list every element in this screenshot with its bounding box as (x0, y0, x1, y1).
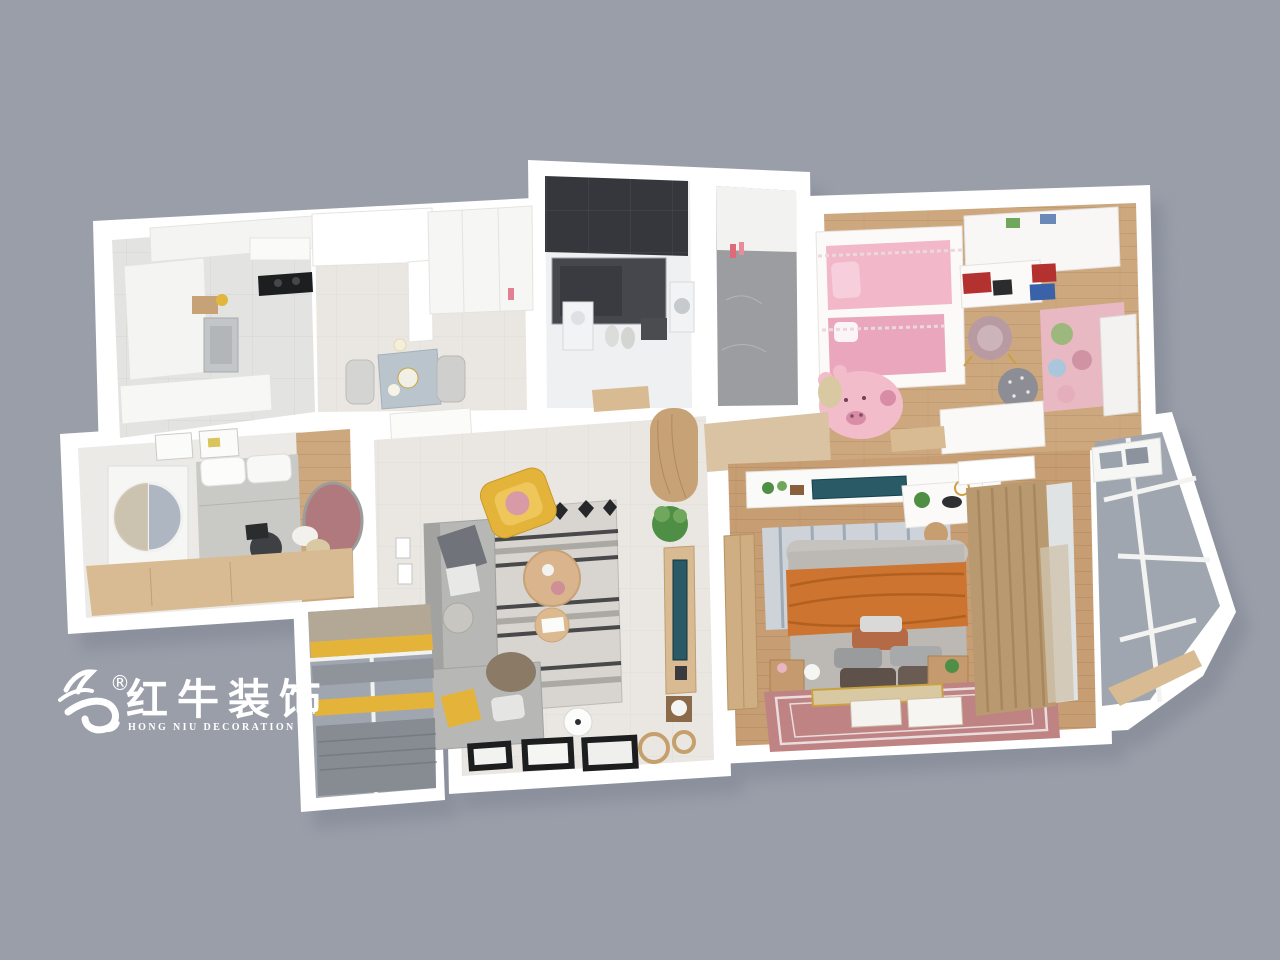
toy-box-blue (1030, 283, 1056, 300)
shelf-plant (762, 482, 774, 494)
blue-pillow (1048, 359, 1066, 377)
plant-leaf (654, 506, 670, 522)
range-hood (250, 238, 310, 260)
kitchen-white-cabinet (312, 208, 433, 266)
knit-basket (443, 603, 473, 633)
slipper (621, 327, 635, 349)
pink-deco (508, 288, 514, 300)
soundbar (675, 666, 687, 680)
pig-spot (880, 390, 896, 406)
desk-items (942, 496, 962, 508)
utility-cabinet (716, 186, 797, 252)
tv-screen (673, 560, 687, 660)
wall-frame (155, 433, 193, 460)
render-canvas: ® 红牛装饰 HONG NIU DECORATION (0, 0, 1280, 960)
pillow-deco (860, 616, 902, 632)
bath-sink-cabinet (563, 302, 593, 350)
plant-leaf (673, 509, 687, 523)
star-pillow (1051, 323, 1073, 345)
wash-basin (571, 311, 585, 325)
cushion-white (490, 694, 525, 722)
book (541, 617, 564, 633)
nightstand (770, 660, 804, 692)
room-second-bedroom (78, 429, 362, 618)
rose-pillow (1072, 350, 1092, 370)
room-kids-bedroom (816, 203, 1142, 462)
pig-eye (862, 396, 866, 400)
floor-frame (907, 697, 962, 728)
kids-pillow (831, 261, 861, 299)
pillow (246, 453, 292, 483)
wood-box (790, 485, 804, 495)
nightstand-plant (945, 659, 959, 673)
coffee-table-large (524, 550, 580, 606)
shelf-book (1040, 214, 1056, 224)
paper-roll (671, 700, 687, 716)
toy-box-red (1032, 263, 1057, 282)
pig-ear (833, 365, 847, 379)
yellow-dish (216, 294, 228, 306)
desk-plant (914, 492, 930, 508)
pig-nostril (859, 413, 863, 417)
table-vase (542, 564, 554, 576)
gray-towel (1099, 451, 1123, 469)
pink-bottle (739, 242, 744, 255)
tan-pillow (818, 376, 842, 408)
pillow-gray (834, 648, 882, 668)
pig-nostril (850, 414, 854, 418)
pig-snout (846, 411, 866, 425)
burner (274, 279, 282, 287)
washer-door (674, 298, 690, 314)
throw-blanket (486, 652, 536, 692)
bath-dark-tile-grid (545, 176, 688, 256)
cooktop (258, 272, 313, 296)
gray-towel (1125, 447, 1149, 465)
room-kitchen (112, 206, 533, 447)
room-utility (716, 186, 798, 406)
wall-frame (398, 564, 412, 584)
shelf-plant (777, 481, 787, 491)
pig-eye (844, 398, 848, 402)
frame-art (208, 438, 221, 448)
cushion-white (446, 564, 480, 597)
logo-chinese: 红牛装饰 (126, 675, 330, 724)
logo-english: HONG NIU DECORATION (128, 722, 296, 733)
bath-stool (641, 318, 667, 340)
kids-window-frame (1100, 314, 1138, 416)
red-case (962, 272, 991, 294)
slipper (605, 325, 619, 347)
floor-frame (850, 699, 901, 728)
flowers (388, 384, 400, 396)
kids-pillow-white (834, 322, 858, 342)
bath-threshold (592, 386, 650, 412)
sink-basin (210, 326, 232, 364)
cutting-board (192, 296, 218, 314)
kitchen-counter-slab (124, 258, 208, 380)
laptop (993, 279, 1013, 295)
pink-bottle (730, 244, 736, 258)
dining-chair (437, 356, 465, 402)
floorplan-svg: ® 红牛装饰 HONG NIU DECORATION (0, 0, 1280, 960)
blind-gray-lower (316, 718, 436, 796)
dining-chair (346, 360, 374, 404)
room-master-bedroom (724, 450, 1096, 752)
wall-frame (396, 538, 410, 558)
side-table-deco (575, 719, 581, 725)
hall-closet (428, 206, 533, 314)
pillow (200, 456, 246, 486)
master-tv (812, 476, 907, 499)
pendant-lamp (394, 339, 406, 351)
kids-armchair-seat (977, 325, 1003, 351)
laptop (245, 523, 268, 540)
ball-lamp (804, 664, 820, 680)
flower-deco (777, 663, 787, 673)
kids-low-cabinet (940, 401, 1045, 454)
kids-door-threshold (890, 426, 946, 452)
room-bathroom (545, 176, 694, 412)
pink-pillow (1057, 385, 1075, 403)
pink-bowl (551, 581, 565, 595)
shelf-book (1006, 218, 1020, 228)
dining-plate (398, 368, 418, 388)
burner (292, 277, 300, 285)
